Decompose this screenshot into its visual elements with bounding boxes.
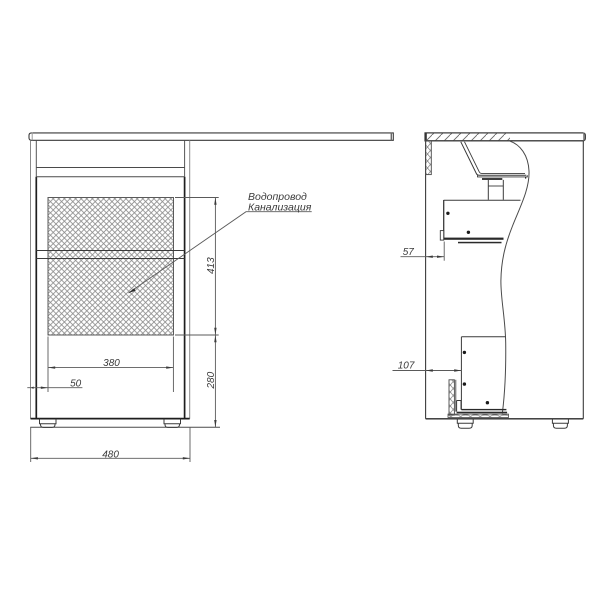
svg-text:380: 380 bbox=[103, 358, 120, 369]
svg-text:280: 280 bbox=[206, 371, 217, 389]
svg-text:107: 107 bbox=[398, 361, 415, 372]
svg-text:50: 50 bbox=[70, 378, 82, 389]
svg-text:Канализация: Канализация bbox=[248, 202, 312, 214]
svg-text:413: 413 bbox=[206, 257, 217, 274]
svg-text:57: 57 bbox=[403, 247, 415, 258]
svg-text:480: 480 bbox=[102, 449, 119, 460]
